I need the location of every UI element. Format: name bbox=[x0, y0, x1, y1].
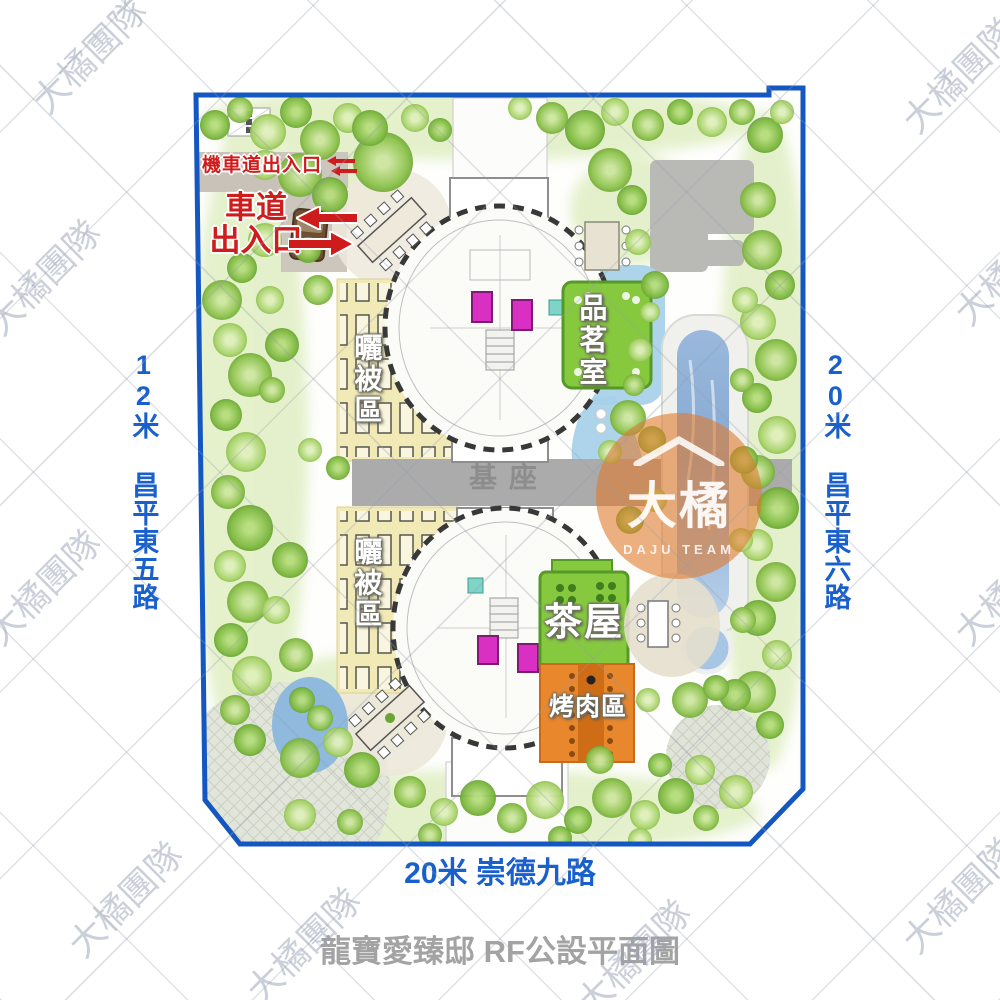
road-label-left: 12米 昌平東五路 bbox=[129, 350, 157, 611]
page-title: 龍寶愛臻邸 RF公設平面圖 bbox=[0, 936, 1000, 969]
arrow-right-icon bbox=[288, 231, 354, 262]
bbq-area-label: 烤肉區 bbox=[549, 694, 627, 720]
drive-entrance-line1: 車道 bbox=[225, 190, 287, 225]
upper-courtyard bbox=[453, 98, 547, 182]
road-label-bottom: 20米 崇德九路 bbox=[0, 858, 1000, 890]
podium-label: 基座 bbox=[469, 463, 549, 492]
site-plan-page: 機車道出入口 車道出入口 曬被區 曬被區 基座 品茗室 茶屋 烤肉區 12米 昌… bbox=[0, 0, 1000, 1000]
moto-entrance-text: 機車道出入口 bbox=[202, 156, 322, 176]
road-label-right: 20米 昌平東六路 bbox=[821, 350, 849, 611]
terrace-table bbox=[624, 573, 720, 677]
sun-area-label-upper: 曬被區 bbox=[352, 333, 381, 426]
moto-entrance-label: 機車道出入口 bbox=[202, 156, 357, 176]
tea-tasting-room-label: 品茗室 bbox=[577, 293, 606, 389]
sun-area-label-lower: 曬被區 bbox=[352, 537, 381, 630]
upper-table bbox=[575, 222, 630, 270]
moto-arrows-icon bbox=[327, 156, 357, 176]
tea-house-label: 茶屋 bbox=[544, 604, 624, 644]
gray-structure bbox=[650, 160, 754, 272]
